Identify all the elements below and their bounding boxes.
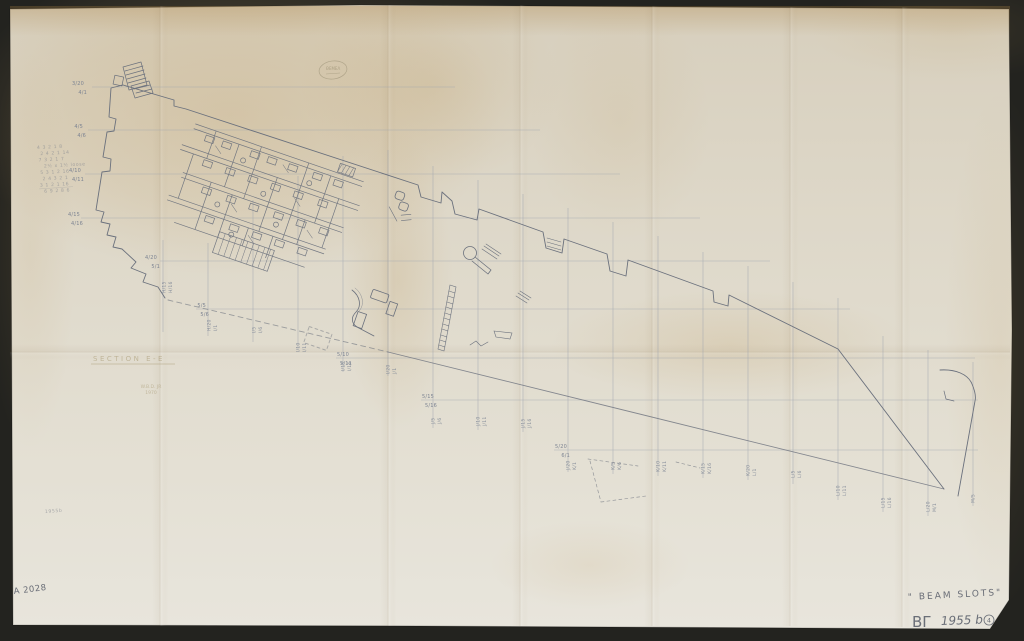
grid-label: H/16	[168, 281, 174, 293]
grid-label: I/20	[386, 364, 392, 374]
grid-label: M/5	[971, 494, 977, 503]
grid-label: 5/15	[422, 394, 434, 400]
grid-label: K/1	[572, 462, 578, 470]
grid-label: 3/20	[72, 81, 84, 87]
series-mark: ΒΓ	[912, 613, 931, 631]
grid-label: J/5	[431, 418, 437, 425]
grid-label: 4/16	[71, 221, 83, 227]
grid-label: L/1	[752, 468, 758, 476]
grid-label: J/20	[566, 460, 572, 471]
grid-label: 6/1	[561, 453, 570, 459]
grid-label: J/10	[476, 416, 482, 427]
grid-label: 4/6	[77, 133, 86, 139]
scanned-drawing: 3/204/1 4/54/6 4/104/11 4/154/16 4/205/1…	[0, 0, 1024, 641]
grid-label: 4/11	[72, 177, 84, 183]
grid-label: J/15	[521, 418, 527, 429]
grid-label: L/10	[836, 485, 842, 496]
grid-label: I/1	[213, 325, 219, 331]
grid-label: K/11	[662, 461, 668, 472]
grid-label: J/11	[482, 416, 488, 427]
drawing-canvas: 3/204/1 4/54/6 4/104/11 4/154/16 4/205/1…	[0, 0, 1024, 641]
stain-center-fold	[343, 130, 453, 430]
grid-label: 4/15	[68, 212, 80, 218]
grid-label: K/5	[611, 462, 617, 470]
grid-label: 4/5	[74, 124, 83, 130]
grid-label: K/16	[707, 463, 713, 474]
grid-label: 5/5	[197, 303, 206, 309]
grid-label: K/15	[701, 463, 707, 474]
blob-text: ΘΕΜΕΛ	[326, 66, 341, 71]
grid-label: I/6	[258, 327, 264, 333]
grid-label: 5/10	[337, 352, 349, 358]
grid-label: 5/6	[200, 312, 209, 318]
grid-label: M/1	[932, 503, 938, 512]
grid-label: 4/1	[78, 90, 87, 96]
grid-label: J/16	[527, 418, 533, 429]
grid-label: I/10	[296, 342, 302, 352]
grid-label: H/20	[207, 319, 213, 331]
grid-label: J/1	[392, 368, 398, 375]
grid-label: L/5	[791, 470, 797, 478]
grid-label: H/15	[162, 281, 168, 293]
grid-label: I/5	[252, 327, 258, 333]
circled-note: 4	[987, 617, 991, 625]
grid-label: L/16	[887, 497, 893, 508]
year-label: 1955 b	[941, 613, 984, 628]
credit-name: W.B.D. JR	[141, 384, 162, 390]
grid-label: 5/20	[555, 444, 567, 450]
grid-label: 4/20	[145, 255, 157, 261]
grid-label: 5/16	[425, 403, 437, 409]
faint-year-note: 1955b	[45, 508, 63, 515]
grid-label: L/15	[881, 497, 887, 508]
grid-label: I/15	[341, 361, 347, 371]
grid-label: 5/1	[151, 264, 160, 270]
section-title: SECTION E-E	[93, 355, 165, 363]
grid-label: I/16	[347, 361, 353, 371]
grid-label: L/6	[797, 470, 803, 478]
credit-year: 1970	[145, 390, 157, 396]
grid-label: J/6	[437, 418, 443, 425]
grid-label: 4/10	[69, 168, 81, 174]
grid-label: L/20	[926, 501, 932, 512]
grid-label: K/10	[656, 461, 662, 472]
grid-label: L/11	[842, 485, 848, 496]
grid-label: K/20	[746, 465, 752, 476]
